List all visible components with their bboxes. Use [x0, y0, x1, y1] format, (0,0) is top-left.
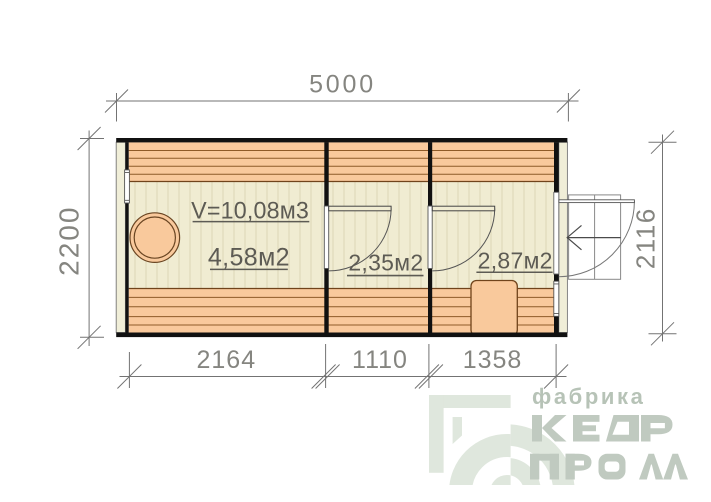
svg-text:2,35м2: 2,35м2 [348, 249, 423, 275]
svg-text:2200: 2200 [54, 206, 85, 276]
svg-text:фабрика: фабрика [532, 384, 645, 409]
svg-text:2,87м2: 2,87м2 [478, 248, 553, 274]
svg-text:1358: 1358 [463, 346, 523, 374]
svg-text:1110: 1110 [352, 346, 408, 374]
svg-text:2116: 2116 [631, 207, 661, 269]
svg-text:V=10,08м3: V=10,08м3 [191, 197, 309, 225]
svg-text:2164: 2164 [196, 346, 256, 374]
svg-text:5000: 5000 [309, 71, 376, 99]
svg-text:4,58м2: 4,58м2 [208, 244, 290, 272]
